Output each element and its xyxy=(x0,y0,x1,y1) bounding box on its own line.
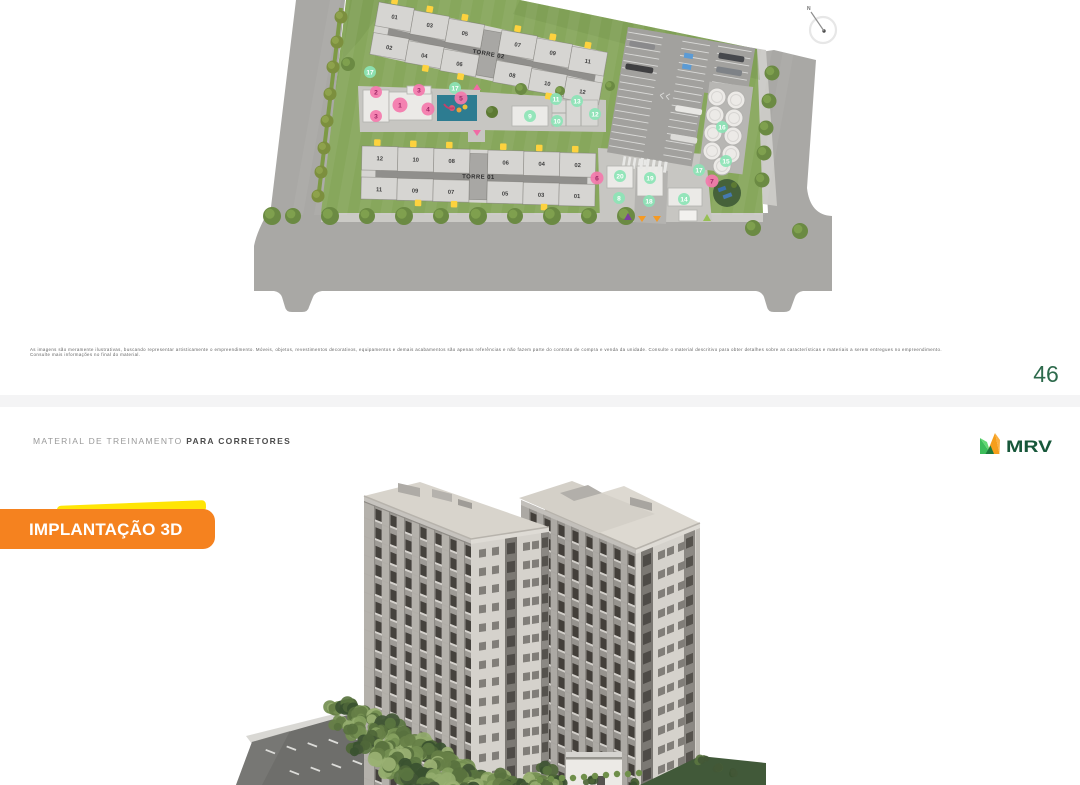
svg-text:02: 02 xyxy=(385,45,392,52)
svg-text:13: 13 xyxy=(573,98,581,105)
svg-text:6: 6 xyxy=(595,175,599,182)
svg-text:17: 17 xyxy=(695,167,703,174)
svg-text:4: 4 xyxy=(426,106,430,113)
svg-text:06: 06 xyxy=(502,160,509,166)
svg-text:09: 09 xyxy=(412,189,419,195)
svg-text:07: 07 xyxy=(514,42,521,49)
svg-text:17: 17 xyxy=(451,85,459,92)
svg-text:15: 15 xyxy=(722,158,730,165)
svg-text:10: 10 xyxy=(553,118,561,125)
svg-text:18: 18 xyxy=(645,198,653,205)
svg-text:N: N xyxy=(807,6,811,12)
svg-text:12: 12 xyxy=(579,89,586,96)
svg-text:5: 5 xyxy=(459,95,463,102)
svg-text:10: 10 xyxy=(544,81,551,88)
svg-text:2: 2 xyxy=(374,89,378,96)
svg-text:04: 04 xyxy=(538,162,545,168)
svg-text:19: 19 xyxy=(646,175,654,182)
svg-text:12: 12 xyxy=(591,111,599,118)
svg-text:1: 1 xyxy=(398,102,402,109)
svg-text:07: 07 xyxy=(448,190,455,196)
svg-text:08: 08 xyxy=(448,159,455,165)
svg-text:14: 14 xyxy=(680,196,688,203)
svg-text:12: 12 xyxy=(376,156,383,162)
svg-text:17: 17 xyxy=(366,69,374,76)
svg-text:9: 9 xyxy=(528,113,532,120)
svg-text:11: 11 xyxy=(376,187,383,193)
svg-text:8: 8 xyxy=(617,195,621,202)
svg-text:05: 05 xyxy=(502,191,509,197)
svg-text:TORRE 01: TORRE 01 xyxy=(462,174,495,181)
svg-text:16: 16 xyxy=(718,124,726,131)
svg-text:11: 11 xyxy=(553,96,560,103)
svg-text:7: 7 xyxy=(710,178,714,185)
svg-text:01: 01 xyxy=(574,194,581,200)
svg-text:3: 3 xyxy=(374,113,378,120)
svg-text:MRV: MRV xyxy=(1006,438,1052,456)
svg-text:3: 3 xyxy=(417,87,421,94)
svg-text:03: 03 xyxy=(538,193,545,199)
svg-text:02: 02 xyxy=(574,163,581,169)
svg-text:20: 20 xyxy=(616,173,624,180)
svg-text:10: 10 xyxy=(412,158,419,164)
